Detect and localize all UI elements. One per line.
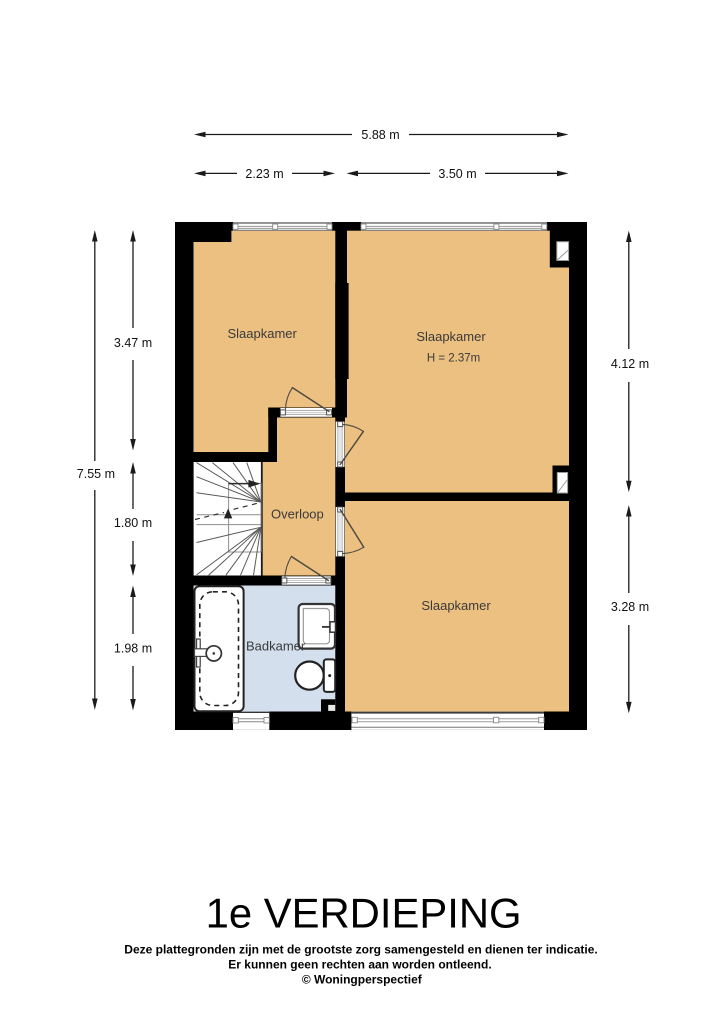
svg-text:Slaapkamer: Slaapkamer	[421, 598, 491, 613]
svg-text:2.23 m: 2.23 m	[245, 167, 283, 181]
svg-text:1.98 m: 1.98 m	[114, 642, 152, 656]
svg-text:4.12 m: 4.12 m	[611, 357, 649, 371]
svg-text:3.28 m: 3.28 m	[611, 600, 649, 614]
svg-text:7.55 m: 7.55 m	[77, 467, 115, 481]
svg-text:5.88 m: 5.88 m	[361, 128, 399, 142]
svg-text:1.80 m: 1.80 m	[114, 516, 152, 530]
svg-text:Deze plattegronden zijn met de: Deze plattegronden zijn met de grootste …	[124, 943, 597, 957]
svg-text:Er kunnen geen rechten aan wor: Er kunnen geen rechten aan worden ontlee…	[228, 957, 491, 971]
svg-text:© Woningperspectief: © Woningperspectief	[302, 972, 423, 986]
svg-text:3.47 m: 3.47 m	[114, 336, 152, 350]
svg-text:H = 2.37m: H = 2.37m	[427, 353, 480, 365]
svg-text:1e VERDIEPING: 1e VERDIEPING	[206, 889, 522, 936]
svg-text:3.50 m: 3.50 m	[438, 167, 476, 181]
svg-text:Overloop: Overloop	[271, 506, 324, 521]
svg-text:Slaapkamer: Slaapkamer	[228, 326, 298, 341]
svg-text:Badkamer: Badkamer	[246, 639, 306, 654]
svg-text:Slaapkamer: Slaapkamer	[416, 329, 486, 344]
